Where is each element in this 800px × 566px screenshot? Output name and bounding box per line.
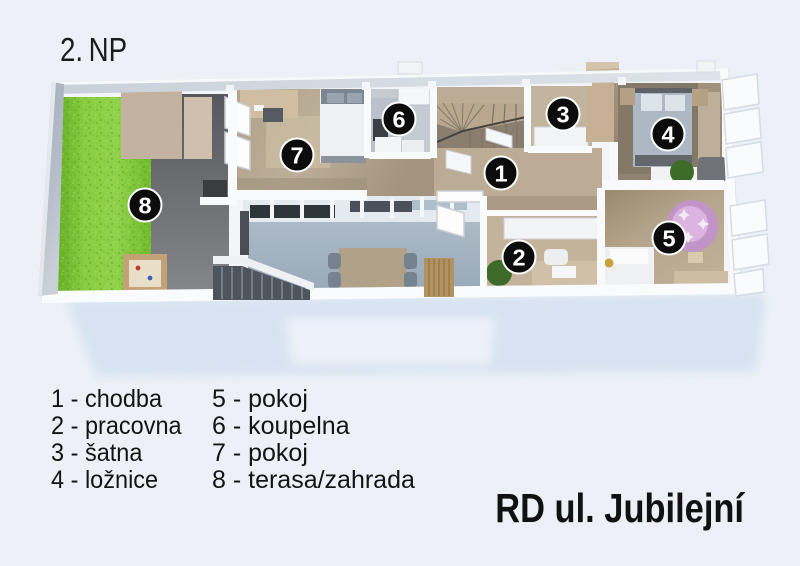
svg-text:8: 8	[138, 193, 151, 219]
svg-text:1: 1	[494, 161, 507, 187]
svg-text:7: 7	[290, 143, 303, 169]
svg-text:3: 3	[556, 102, 569, 128]
svg-text:4: 4	[661, 122, 674, 148]
svg-text:2: 2	[512, 245, 525, 271]
svg-text:6: 6	[392, 107, 405, 133]
svg-text:5: 5	[662, 226, 675, 252]
